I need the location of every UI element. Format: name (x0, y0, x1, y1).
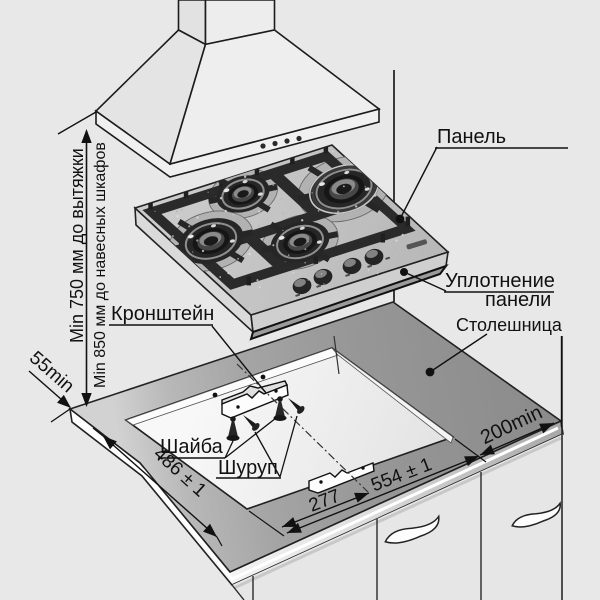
svg-text:Min 850 мм до навесных шкафов: Min 850 мм до навесных шкафов (92, 142, 109, 388)
svg-text:Панель: Панель (437, 126, 506, 148)
svg-text:Min 750 мм до вытяжки: Min 750 мм до вытяжки (67, 148, 87, 343)
svg-text:Кронштейн: Кронштейн (111, 303, 214, 325)
svg-text:Столешница: Столешница (456, 315, 563, 335)
svg-text:Шуруп: Шуруп (218, 457, 278, 479)
